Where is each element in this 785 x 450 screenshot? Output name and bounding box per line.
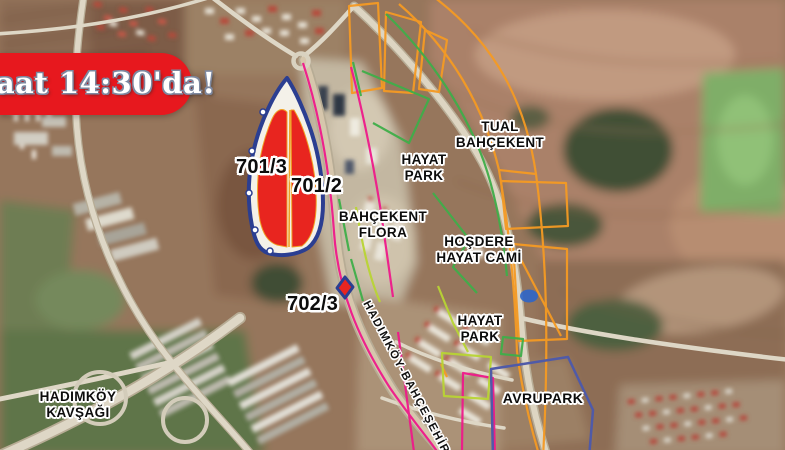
plot-label-701-3: 701/3 (236, 156, 287, 180)
plot-label-702-3: 702/3 (287, 293, 338, 317)
time-banner: Saat 14:30'da! (0, 53, 192, 115)
pond (520, 290, 538, 303)
label-hayat-park-upper: HAYAT PARK (401, 152, 446, 184)
label-bahcekent-flora: BAHÇEKENT FLORA (339, 209, 427, 241)
label-hadimkoy-kavsagi: HADIMKÖY KAVŞAĞI (40, 389, 117, 421)
time-banner-text: Saat 14:30'da! (0, 66, 222, 102)
label-tual-bahcekent: TUAL BAHÇEKENT (456, 119, 544, 151)
label-hayat-park-lower: HAYAT PARK (457, 313, 502, 345)
plot-label-701-2: 701/2 (291, 175, 342, 199)
label-avrupark: AVRUPARK (503, 390, 583, 407)
satellite-map: 701/3 701/2 702/3 TUAL BAHÇEKENT HAYAT P… (0, 0, 785, 450)
label-hosdere-hayat-cami: HOŞDERE HAYAT CAMİ (436, 234, 521, 266)
